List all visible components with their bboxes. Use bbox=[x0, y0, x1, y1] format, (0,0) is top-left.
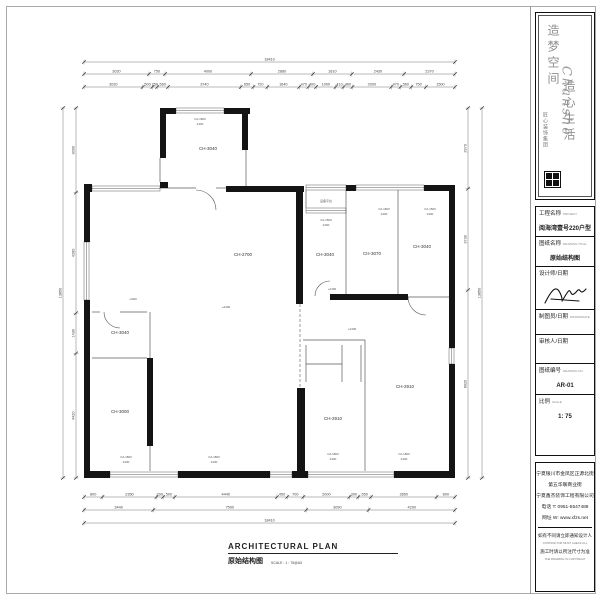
dim-text: 460 bbox=[345, 83, 351, 87]
logo-block: Chanshe 造梦空间 造心生活 匠心装饰集团 bbox=[535, 12, 595, 200]
drawing-number-label: 图纸编号DRAWING NO. bbox=[536, 364, 594, 377]
dim-text: 2850 bbox=[400, 493, 408, 497]
room-label: CH-3040 bbox=[413, 244, 432, 249]
dim-text: 250 bbox=[152, 83, 158, 87]
plan-caption-title-cn: 原始结构图 bbox=[228, 556, 263, 566]
dim-text: 18410 bbox=[264, 58, 275, 62]
dim-text: 720 bbox=[257, 83, 263, 87]
dim-text: 2880 bbox=[278, 70, 286, 74]
designer-signature-scribble bbox=[539, 281, 591, 309]
annotation-text: 2400 bbox=[381, 212, 388, 216]
floor-plan-canvas: CH-3040CH-2700CH-3040CH-3070CH-3040CH-30… bbox=[0, 0, 600, 600]
logo-script-column-1: 造梦空间 bbox=[545, 24, 562, 88]
project-name-value: 阅海湾壹号220户型图 bbox=[536, 220, 594, 237]
room-label: CH-2910 bbox=[324, 416, 343, 421]
footer-divider bbox=[538, 527, 592, 528]
door-swing-arc bbox=[196, 190, 216, 210]
wall bbox=[147, 358, 153, 446]
room-label: CH-3040 bbox=[316, 252, 335, 257]
company-address-line1: 宁夏银川市金凤区正源北街 bbox=[536, 469, 594, 480]
dim-text: 4280 bbox=[72, 249, 76, 257]
dim-text: 2000 bbox=[368, 83, 376, 87]
dim-text: 1000 bbox=[322, 83, 330, 87]
dim-text: 3020 bbox=[109, 83, 117, 87]
dim-text: 410 bbox=[336, 83, 342, 87]
annotation-text: 2400 bbox=[123, 460, 130, 464]
wall bbox=[296, 192, 303, 304]
footer-note1-cn: 如有不同请立即通知设计人员 bbox=[536, 531, 594, 540]
footer-note1-en: CONTRACTOR MUST CHECK ALL DIMENSIONS ON … bbox=[536, 540, 594, 547]
dim-text: 470 bbox=[393, 83, 399, 87]
dim-text: 13850 bbox=[59, 288, 63, 299]
designer-signature bbox=[536, 280, 594, 310]
annotation-text: +2400 bbox=[328, 287, 337, 291]
dim-text: 500 bbox=[144, 83, 150, 87]
wall bbox=[297, 388, 305, 473]
plan-caption: ARCHITECTURAL PLAN 原始结构图 SCALE : 1 : 75@… bbox=[228, 542, 398, 566]
annotation-text: 2400 bbox=[197, 122, 204, 126]
dim-text: 3740 bbox=[200, 83, 208, 87]
annotation-text: +2400 bbox=[222, 305, 231, 309]
door-swing-arc bbox=[104, 312, 120, 328]
wall bbox=[160, 182, 168, 188]
dim-text: 4440 bbox=[222, 493, 230, 497]
footer-note2-en: THE DRAWING IS COPYRIGHT bbox=[536, 556, 594, 563]
footer-block: 宁夏银川市金凤区正源北街 第五华联商业街 宁夏鑫杰装饰工程有限公司 电话 T: … bbox=[535, 462, 595, 592]
company-phone: 电话 T: 0951-5547488 bbox=[536, 502, 594, 513]
dim-text: 3000 bbox=[72, 146, 76, 154]
annotation-text: 2400 bbox=[323, 223, 330, 227]
drawing-name-value: 原始结构图 bbox=[536, 250, 594, 267]
dim-text: 470 bbox=[301, 83, 307, 87]
wall bbox=[84, 471, 110, 478]
annotation-text: C2-1800 bbox=[398, 452, 410, 456]
dim-text: 800 bbox=[443, 493, 449, 497]
dim-text: 1430 bbox=[72, 329, 76, 337]
annotation-text: 2400 bbox=[401, 457, 408, 461]
annotation-text: C2-1800 bbox=[120, 455, 132, 459]
scale-value: 1: 75 bbox=[536, 408, 594, 428]
wall bbox=[160, 108, 166, 158]
dim-text: 650 bbox=[244, 83, 250, 87]
dim-text: 2370 bbox=[425, 70, 433, 74]
drawing-name-label: 图纸名称DRAWING TITLE bbox=[536, 237, 594, 250]
scale-label: 比例SCALE bbox=[536, 395, 594, 408]
dim-text: 500 bbox=[166, 493, 172, 497]
annotation-text: C2-1800 bbox=[194, 117, 206, 121]
wall bbox=[330, 294, 408, 300]
company-name: 宁夏鑫杰装饰工程有限公司 bbox=[536, 491, 594, 502]
dim-text: 1640 bbox=[279, 83, 287, 87]
drafter-date-value bbox=[536, 323, 594, 335]
wall bbox=[84, 192, 90, 242]
annotation-text: C2-1800 bbox=[208, 455, 220, 459]
designer-date-label: 设计师/日期DESIGNER/DATE bbox=[536, 267, 594, 280]
drawing-sheet: CH-3040CH-2700CH-3040CH-3070CH-3040CH-30… bbox=[0, 0, 600, 600]
dim-text: 1500 bbox=[436, 83, 444, 87]
project-name-label: 工程名称PROJECT bbox=[536, 207, 594, 220]
dim-text: 2970 bbox=[464, 144, 468, 152]
plan-caption-title-en: ARCHITECTURAL PLAN bbox=[228, 542, 398, 554]
plan-caption-scale-note: SCALE : 1 : 75@A3 bbox=[271, 561, 302, 566]
door-swing-arc bbox=[408, 297, 426, 315]
room-label: CH-3040 bbox=[111, 330, 130, 335]
dim-text: 4420 bbox=[72, 411, 76, 419]
room-label: CH-3000 bbox=[111, 409, 130, 414]
wall bbox=[449, 364, 455, 478]
annotation-text: C2-1500 bbox=[320, 218, 332, 222]
dim-text: 2430 bbox=[374, 70, 382, 74]
dim-text: 3730 bbox=[464, 235, 468, 243]
dim-text: 800 bbox=[90, 493, 96, 497]
wall bbox=[394, 471, 455, 478]
annotation-text: C2-1800 bbox=[327, 452, 339, 456]
dim-text: 1810 bbox=[328, 70, 336, 74]
dim-text: 750 bbox=[154, 70, 160, 74]
dim-text: 750 bbox=[415, 83, 421, 87]
dim-text: 560 bbox=[159, 83, 165, 87]
dim-text: 3440 bbox=[114, 506, 122, 510]
company-seal bbox=[544, 171, 561, 188]
room-label: CH-3070 bbox=[363, 251, 382, 256]
footer-note2-cn: 施工时请以所注尺寸为准 bbox=[536, 547, 594, 556]
title-block: 工程名称PROJECT 阅海湾壹号220户型图 图纸名称DRAWING TITL… bbox=[535, 206, 595, 456]
dim-text: 6920 bbox=[464, 380, 468, 388]
annotation-text: 2400 bbox=[330, 457, 337, 461]
wall bbox=[84, 300, 90, 478]
dim-text: 13850 bbox=[478, 288, 482, 299]
dim-text: 7590 bbox=[226, 506, 234, 510]
dim-text: 2000 bbox=[322, 493, 330, 497]
drawing-number-value: AR-01 bbox=[536, 377, 594, 395]
wall bbox=[449, 186, 455, 348]
dim-text: 4290 bbox=[408, 506, 416, 510]
logo-tagline: 匠心装饰集团 bbox=[542, 112, 549, 148]
dim-text: 700 bbox=[292, 493, 298, 497]
dim-text: 2350 bbox=[125, 493, 133, 497]
dim-text: 390 bbox=[351, 493, 357, 497]
wall bbox=[84, 184, 92, 192]
logo-script-column-2: 造心生活 bbox=[561, 80, 578, 144]
wall bbox=[226, 186, 304, 192]
dim-text: 550 bbox=[361, 493, 367, 497]
annotation-text: 2400 bbox=[427, 212, 434, 216]
dim-text: 3090 bbox=[333, 506, 341, 510]
dim-text: 450 bbox=[279, 493, 285, 497]
annotation-text: -2400 bbox=[129, 297, 137, 301]
dim-text: 18410 bbox=[264, 519, 275, 523]
wall bbox=[178, 471, 270, 478]
company-website: 网址 W: www.xfzs.net bbox=[536, 513, 594, 524]
approver-date-label: 审核人/日期APPROVED/DATE bbox=[536, 335, 594, 348]
company-address-line2: 第五华联商业街 bbox=[536, 480, 594, 491]
annotation-text: C2-1500 bbox=[424, 207, 436, 211]
annotation-text: C2-1500 bbox=[378, 207, 390, 211]
annotation-text: 2400 bbox=[211, 460, 218, 464]
dim-text: 3020 bbox=[112, 70, 120, 74]
dim-text: 4000 bbox=[204, 70, 212, 74]
dim-text: 400 bbox=[309, 83, 315, 87]
dim-text: 290 bbox=[157, 493, 163, 497]
dim-text: 560 bbox=[403, 83, 409, 87]
room-label: CH-3040 bbox=[199, 146, 218, 151]
annotation-text: +2400 bbox=[348, 327, 357, 331]
wall bbox=[346, 185, 356, 191]
approver-date-value bbox=[536, 348, 594, 364]
drafter-date-label: 制图员/日期DRAWN/DATE bbox=[536, 310, 594, 323]
room-label: CH-2910 bbox=[396, 384, 415, 389]
annotation-text: 设备平台 bbox=[320, 198, 332, 203]
room-label: CH-2700 bbox=[234, 252, 253, 257]
logo-inner-border: Chanshe 造梦空间 造心生活 匠心装饰集团 bbox=[538, 15, 592, 197]
wall bbox=[242, 108, 248, 150]
